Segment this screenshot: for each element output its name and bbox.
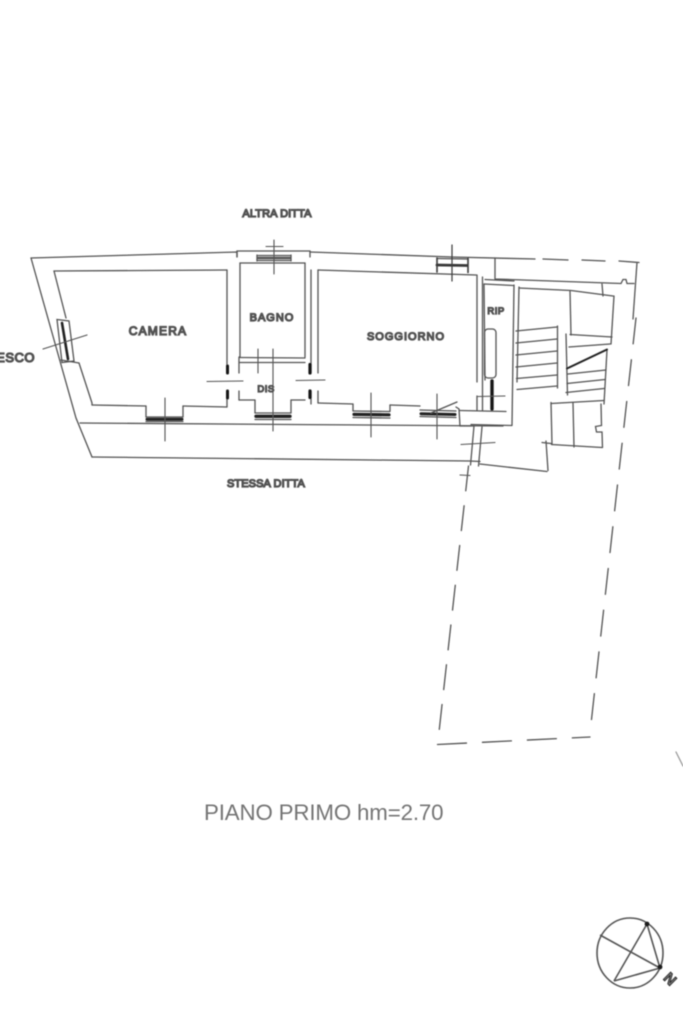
svg-text:DIS: DIS xyxy=(257,384,274,395)
svg-text:N: N xyxy=(660,970,680,990)
svg-text:SOGGIORNO: SOGGIORNO xyxy=(367,331,445,343)
svg-text:RIP: RIP xyxy=(487,306,504,317)
svg-text:ALTRA DITTA: ALTRA DITTA xyxy=(242,208,312,220)
svg-text:BAGNO: BAGNO xyxy=(250,312,295,324)
svg-text:PIANO PRIMO hm=2.70: PIANO PRIMO hm=2.70 xyxy=(204,800,443,825)
svg-text:CAMERA: CAMERA xyxy=(129,324,188,338)
svg-text:STESSA DITTA: STESSA DITTA xyxy=(227,478,306,490)
svg-text:ESCO: ESCO xyxy=(0,350,35,365)
